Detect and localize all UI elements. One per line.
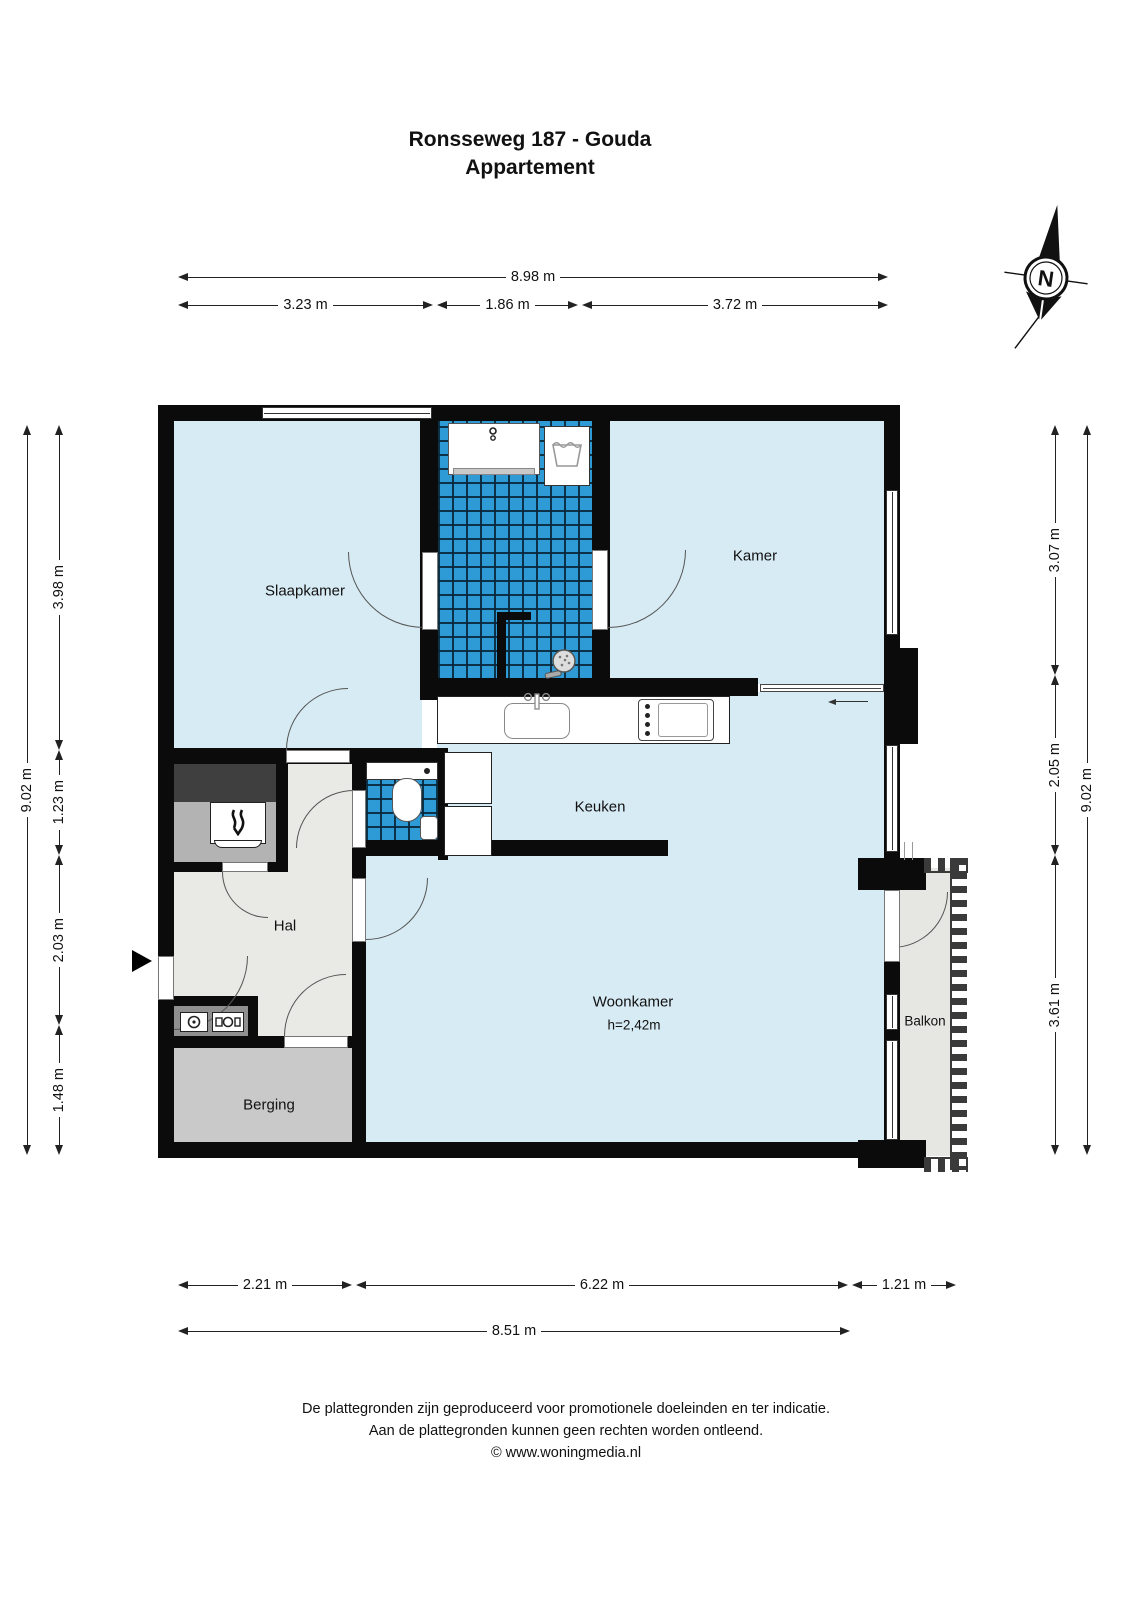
disclaimer-line-2: Aan de plattegronden kunnen geen rechten… xyxy=(0,1420,1132,1442)
dim-left-seg-3: 2.03 m xyxy=(52,855,66,1025)
wall-balkon-south-chunk xyxy=(858,1140,926,1168)
dim-top-seg-2: 1.86 m xyxy=(437,298,578,312)
dim-bottom-seg-2: 6.22 m xyxy=(356,1278,848,1292)
room-label-berging: Berging xyxy=(243,1097,295,1114)
door-leaf-closet xyxy=(222,862,268,872)
meter-panel-icon xyxy=(214,1014,242,1030)
wall-outer-bottom xyxy=(158,1142,900,1158)
bathroom-vanity-sill xyxy=(453,468,535,475)
wall-shower-partition xyxy=(497,612,506,682)
kitchen-cabinet-upper xyxy=(444,752,492,804)
floorplan-page: Ronsseweg 187 - Gouda Appartement N xyxy=(0,0,1132,1600)
door-leaf-berging xyxy=(284,1036,348,1048)
dim-right-overall: 9.02 m xyxy=(1080,425,1094,1155)
wall-bathroom-kamer-south xyxy=(420,678,758,696)
dim-left-seg-2: 1.23 m xyxy=(52,750,66,855)
laundry-tub-icon xyxy=(550,436,584,470)
room-label-keuken: Keuken xyxy=(575,799,626,816)
balkon-railing-bottom xyxy=(924,1157,968,1172)
toilet-cistern-button xyxy=(424,768,430,774)
closet-wardrobe xyxy=(174,764,276,802)
dim-top-seg-3: 3.72 m xyxy=(582,298,888,312)
stove-knob xyxy=(645,713,650,718)
window-kamer-east xyxy=(886,490,898,635)
window-slaapkamer-north xyxy=(262,407,432,419)
door-leaf-entry xyxy=(158,956,174,1000)
balkon-railing-right xyxy=(950,858,967,1170)
dim-right-seg-1: 3.07 m xyxy=(1048,425,1062,675)
meter-gauge-icon xyxy=(184,1014,204,1030)
kitchen-cabinet-lower xyxy=(444,806,492,856)
faucet-icon xyxy=(485,426,501,446)
toilet-hand-sink xyxy=(420,816,438,840)
window-woonkamer-east-1 xyxy=(886,994,898,1030)
ventilation-unit-icon xyxy=(227,808,249,836)
room-label-woonkamer: Woonkamer xyxy=(593,994,674,1011)
window-woonkamer-east-2 xyxy=(886,1040,898,1140)
room-label-hal: Hal xyxy=(274,918,297,935)
dim-left-seg-4: 1.48 m xyxy=(52,1025,66,1155)
title-address: Ronsseweg 187 - Gouda xyxy=(160,126,900,154)
wall-balkon-north-chunk xyxy=(858,858,926,890)
dim-bottom-seg-3: 1.21 m xyxy=(852,1278,956,1292)
room-label-kamer: Kamer xyxy=(733,548,777,565)
room-floor-berging xyxy=(174,1048,352,1142)
wall-outer-left xyxy=(158,405,174,1158)
dim-left-seg-1: 3.98 m xyxy=(52,425,66,750)
stove-knob xyxy=(645,722,650,727)
dim-right-seg-3: 3.61 m xyxy=(1048,855,1062,1155)
room-label-woonkamer-height: h=2,42m xyxy=(608,1018,661,1033)
wall-keuken-woonkamer xyxy=(352,840,668,856)
page-title: Ronsseweg 187 - Gouda Appartement xyxy=(160,126,900,182)
door-leaf-hal-woonkamer xyxy=(352,878,366,942)
room-label-slaapkamer: Slaapkamer xyxy=(265,583,345,600)
door-leaf-toilet xyxy=(352,790,366,848)
copyright: © www.woningmedia.nl xyxy=(0,1442,1132,1464)
sliding-door-kamer-woonkamer xyxy=(760,684,884,692)
oven-door xyxy=(658,703,708,737)
door-leaf-bathroom-kamer xyxy=(592,550,608,630)
dim-left-overall: 9.02 m xyxy=(20,425,34,1155)
kitchen-faucet-icon xyxy=(522,692,552,710)
wall-sliding-pocket xyxy=(884,648,918,744)
disclaimer-line-1: De plattegronden zijn geproduceerd voor … xyxy=(0,1398,1132,1420)
room-label-balkon: Balkon xyxy=(904,1014,945,1029)
compass-rose: N xyxy=(1000,202,1096,352)
door-leaf-balkon xyxy=(884,890,900,962)
title-type: Appartement xyxy=(160,154,900,182)
dim-top-seg-1: 3.23 m xyxy=(178,298,433,312)
door-leaf-slaapkamer-bathroom xyxy=(422,552,438,630)
window-keuken-east xyxy=(886,745,898,852)
entrance-arrow xyxy=(132,950,152,972)
sliding-door-arrow xyxy=(828,697,868,706)
dim-bottom-seg-1: 2.21 m xyxy=(178,1278,352,1292)
stove-knob xyxy=(645,731,650,736)
door-leaf-slaapkamer-hal xyxy=(286,750,350,763)
balkon-connector xyxy=(904,842,913,860)
wall-toilet-north xyxy=(352,748,448,762)
wall-closet-divider xyxy=(276,764,288,872)
disclaimer: De plattegronden zijn geproduceerd voor … xyxy=(0,1398,1132,1464)
dim-right-seg-2: 2.05 m xyxy=(1048,675,1062,855)
toilet-bowl xyxy=(392,778,422,822)
dim-top-overall: 8.98 m xyxy=(178,270,888,284)
wall-shower-stub xyxy=(497,612,531,620)
stove-knob xyxy=(645,704,650,709)
boiler-box-front xyxy=(214,840,262,848)
shower-head-icon xyxy=(542,646,578,684)
dim-bottom-overall: 8.51 m xyxy=(178,1324,850,1338)
